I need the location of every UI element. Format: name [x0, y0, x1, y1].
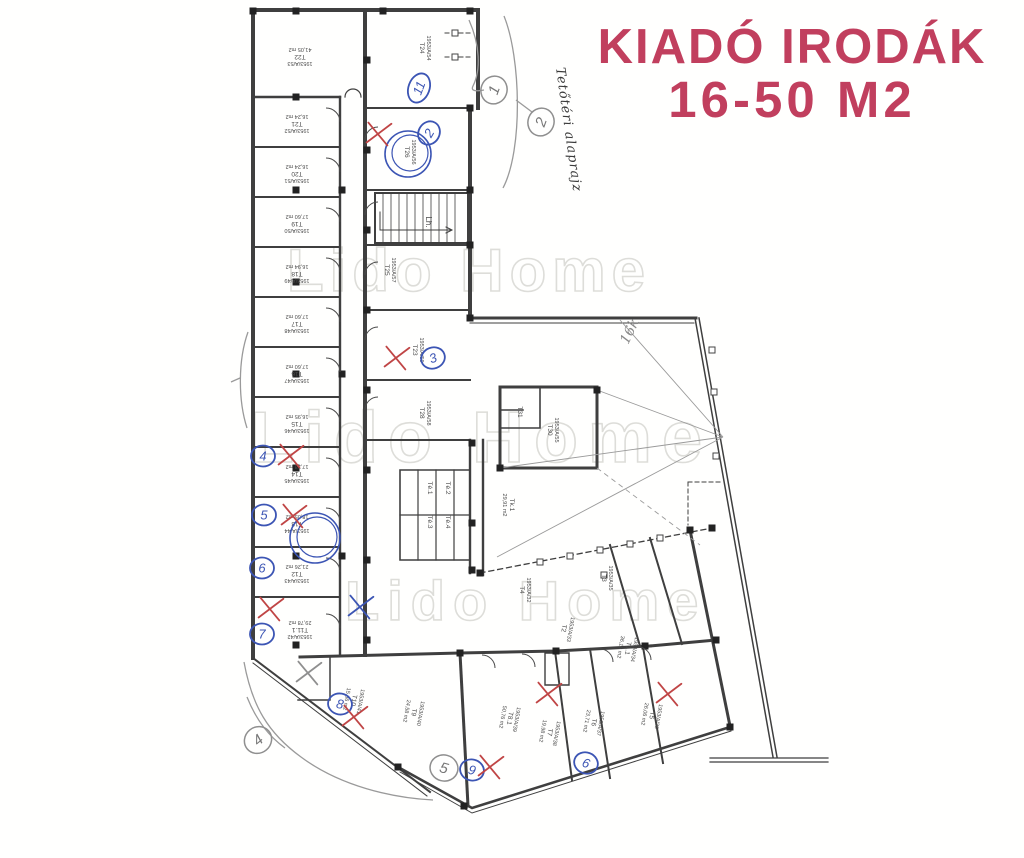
- unit-label: 1953/A/47T1617,60 m2: [284, 363, 309, 383]
- svg-text:T11.1: T11.1: [292, 626, 309, 633]
- pier-square: [364, 147, 371, 154]
- pier-square: [364, 637, 371, 644]
- door-arc: [326, 208, 340, 222]
- door-arc: [326, 614, 340, 628]
- unit-label: 1953/A/42T11.129,78 m2: [287, 619, 312, 639]
- svg-text:T28: T28: [418, 407, 425, 419]
- unit-label: 1953/A/34T1.136,16 m2: [615, 634, 639, 662]
- blue-circled-number: 6: [571, 749, 601, 777]
- pier-square: [461, 803, 468, 810]
- svg-text:4: 4: [259, 449, 266, 464]
- blue-circled-number: 5: [252, 505, 276, 526]
- pencil-circled-number: 4: [239, 721, 277, 759]
- red-x-mark: [366, 121, 392, 146]
- svg-text:16,95 m2: 16,95 m2: [286, 413, 309, 419]
- svg-text:5: 5: [438, 759, 451, 778]
- unit-label: 1953/A/39T8.150,76 m2: [497, 704, 521, 732]
- svg-text:26,06 m2: 26,06 m2: [639, 702, 649, 726]
- unit-label: 1953/A/51T2016,24 m2: [284, 163, 309, 183]
- red-x-mark: [656, 681, 682, 706]
- column-square: [452, 54, 458, 60]
- pier-square: [467, 187, 474, 194]
- svg-text:T18: T18: [291, 270, 303, 277]
- pier-square: [293, 94, 300, 101]
- stairs-label: Lh.: [424, 216, 433, 227]
- pier-square: [687, 527, 694, 534]
- pier-square: [364, 227, 371, 234]
- unit-label: 1953/A/53T2241,05 m2: [287, 46, 312, 66]
- pier-square: [497, 465, 504, 472]
- pier-square: [364, 57, 371, 64]
- pier-square: [553, 648, 560, 655]
- pier-square: [339, 553, 346, 560]
- pier-square: [395, 764, 402, 771]
- svg-text:T26: T26: [403, 146, 410, 158]
- unit-label: 1953/A/52T2116,24 m2: [284, 113, 309, 133]
- svg-text:50,76 m2: 50,76 m2: [497, 705, 507, 729]
- pier-square: [467, 8, 474, 15]
- unit-label: Tk.129,91 m2: [501, 494, 515, 517]
- unit-label: 1953/A/38T719,98 m2: [537, 718, 561, 746]
- pier-square: [364, 557, 371, 564]
- unit-label: Té.4: [444, 515, 451, 528]
- svg-text:T30: T30: [546, 424, 553, 436]
- red-x-mark: [478, 754, 504, 779]
- unit-label: 1953/A/41T1015,86 m2: [341, 686, 365, 714]
- svg-text:T16: T16: [291, 370, 303, 377]
- unit-label: Té.2: [444, 481, 451, 494]
- listing-title: KIADÓ IRODÁK 16-50 M2: [563, 22, 1021, 126]
- svg-text:21,26 m2: 21,26 m2: [286, 563, 309, 569]
- svg-text:T22: T22: [294, 53, 306, 60]
- pier-square: [293, 187, 300, 194]
- floorplan-scan-page: Lido HomeLido HomeLido Home: [0, 0, 1024, 858]
- door-arc: [326, 158, 340, 172]
- svg-text:7: 7: [258, 627, 266, 642]
- pier-square: [250, 8, 257, 15]
- svg-text:Té.1: Té.1: [426, 481, 433, 494]
- svg-text:Tk.1: Tk.1: [508, 499, 515, 512]
- svg-text:T6: T6: [589, 718, 597, 727]
- door-arc: [326, 108, 340, 122]
- pier-square: [293, 8, 300, 15]
- pier-square: [364, 307, 371, 314]
- svg-text:T4: T4: [518, 586, 525, 594]
- pier-square: [293, 642, 300, 649]
- pier-square: [727, 724, 734, 731]
- column-square: [627, 541, 633, 547]
- pier-square: [380, 8, 387, 15]
- unit-label: Té.1: [426, 481, 433, 494]
- svg-text:T5: T5: [647, 711, 655, 720]
- pier-square: [469, 440, 476, 447]
- red-x-mark: [384, 345, 410, 370]
- door-arc: [522, 654, 535, 667]
- unit-label: 1953/A/59T23: [411, 337, 424, 362]
- unit-label: 1953/A/40T924,58 m2: [401, 698, 425, 726]
- svg-text:17,60 m2: 17,60 m2: [286, 363, 309, 369]
- unit-label: Té.3: [426, 515, 433, 528]
- column-square: [452, 30, 458, 36]
- svg-text:T23: T23: [411, 344, 418, 356]
- title-line-2: 16-50 M2: [563, 73, 1021, 126]
- blue-ring-mark: [297, 517, 337, 557]
- svg-text:29,91 m2: 29,91 m2: [501, 494, 507, 517]
- title-line-1: KIADÓ IRODÁK: [563, 22, 1021, 73]
- svg-text:16,94 m2: 16,94 m2: [286, 263, 309, 269]
- unit-label: 1953/A/44T1318,05 m2: [284, 513, 309, 533]
- blue-circled-number: 9: [458, 757, 487, 783]
- door-arc: [482, 655, 495, 668]
- pier-square: [467, 315, 474, 322]
- svg-text:41,05 m2: 41,05 m2: [289, 46, 312, 52]
- column-square: [709, 347, 715, 353]
- svg-text:2: 2: [420, 125, 437, 140]
- pier-square: [457, 650, 464, 657]
- svg-text:16,24 m2: 16,24 m2: [286, 163, 309, 169]
- svg-text:9: 9: [467, 762, 478, 778]
- svg-text:T15: T15: [291, 420, 303, 427]
- pier-square: [709, 525, 716, 532]
- svg-text:T17: T17: [291, 320, 303, 327]
- svg-text:4: 4: [250, 731, 267, 749]
- red-x-mark: [258, 596, 284, 621]
- pier-square: [467, 242, 474, 249]
- pier-square: [469, 567, 476, 574]
- pier-square: [594, 387, 601, 394]
- floorplan-drawing: Lido HomeLido HomeLido Home: [0, 0, 1024, 858]
- svg-text:23,71 m2: 23,71 m2: [581, 709, 591, 733]
- svg-text:19,98 m2: 19,98 m2: [537, 719, 547, 743]
- svg-text:T7: T7: [545, 728, 553, 737]
- unit-label: T31: [516, 406, 523, 418]
- pier-square: [477, 570, 484, 577]
- pier-square: [469, 520, 476, 527]
- svg-text:5: 5: [260, 508, 268, 523]
- blue-circled-number: 11: [404, 70, 434, 105]
- svg-text:T25: T25: [383, 264, 390, 276]
- pier-square: [467, 105, 474, 112]
- room-labels: 1953/A/53T2241,05 m21953/A/52T2116,24 m2…: [284, 35, 663, 746]
- door-arc: [326, 308, 340, 322]
- svg-text:6: 6: [580, 755, 593, 772]
- svg-text:16,24 m2: 16,24 m2: [286, 113, 309, 119]
- watermark-text: Lido Home: [250, 398, 712, 478]
- svg-text:T31: T31: [516, 406, 523, 418]
- column-square: [657, 535, 663, 541]
- unit-label: 1953/A/37T623,71 m2: [581, 708, 605, 736]
- unit-label: 1953/A/36T526,06 m2: [639, 701, 663, 729]
- svg-text:T21: T21: [291, 120, 303, 127]
- svg-text:17,60 m2: 17,60 m2: [286, 213, 309, 219]
- pier-square: [713, 637, 720, 644]
- pier-square: [364, 387, 371, 394]
- column-square: [567, 553, 573, 559]
- column-square: [711, 389, 717, 395]
- svg-text:17,60 m2: 17,60 m2: [286, 313, 309, 319]
- unit-label: 1953/A/56T26: [403, 139, 416, 164]
- svg-text:Té.3: Té.3: [426, 515, 433, 528]
- svg-text:T24: T24: [418, 42, 425, 54]
- svg-text:T14: T14: [291, 470, 303, 477]
- door-arc: [326, 358, 340, 372]
- svg-text:11: 11: [410, 79, 429, 97]
- svg-text:1: 1: [485, 83, 504, 97]
- unit-label: 1953/A/54T24: [418, 35, 431, 60]
- svg-text:29,78 m2: 29,78 m2: [289, 619, 312, 625]
- unit-label: 1953/A/48T1717,60 m2: [284, 313, 309, 333]
- svg-text:Té.4: Té.4: [444, 515, 451, 528]
- pencil-x-mark: [296, 660, 322, 685]
- svg-text:T20: T20: [291, 170, 303, 177]
- svg-text:Té.2: Té.2: [444, 481, 451, 494]
- svg-text:2: 2: [532, 115, 551, 130]
- svg-text:T12: T12: [291, 570, 303, 577]
- pencil-circled-number: 5: [427, 752, 461, 784]
- svg-text:T3: T3: [600, 574, 607, 582]
- column-square: [597, 547, 603, 553]
- unit-label: 1953/A/43T1221,26 m2: [284, 563, 309, 583]
- column-square: [713, 453, 719, 459]
- svg-text:6: 6: [258, 561, 266, 576]
- red-x-mark: [342, 704, 368, 729]
- pier-square: [339, 187, 346, 194]
- svg-text:T9: T9: [409, 708, 417, 717]
- column-square: [537, 559, 543, 565]
- pier-square: [364, 467, 371, 474]
- svg-text:T19: T19: [291, 220, 303, 227]
- unit-label: 1953/A/50T1917,60 m2: [284, 213, 309, 233]
- door-arc: [600, 649, 613, 662]
- svg-text:3: 3: [427, 349, 440, 366]
- svg-text:24,58 m2: 24,58 m2: [401, 699, 411, 723]
